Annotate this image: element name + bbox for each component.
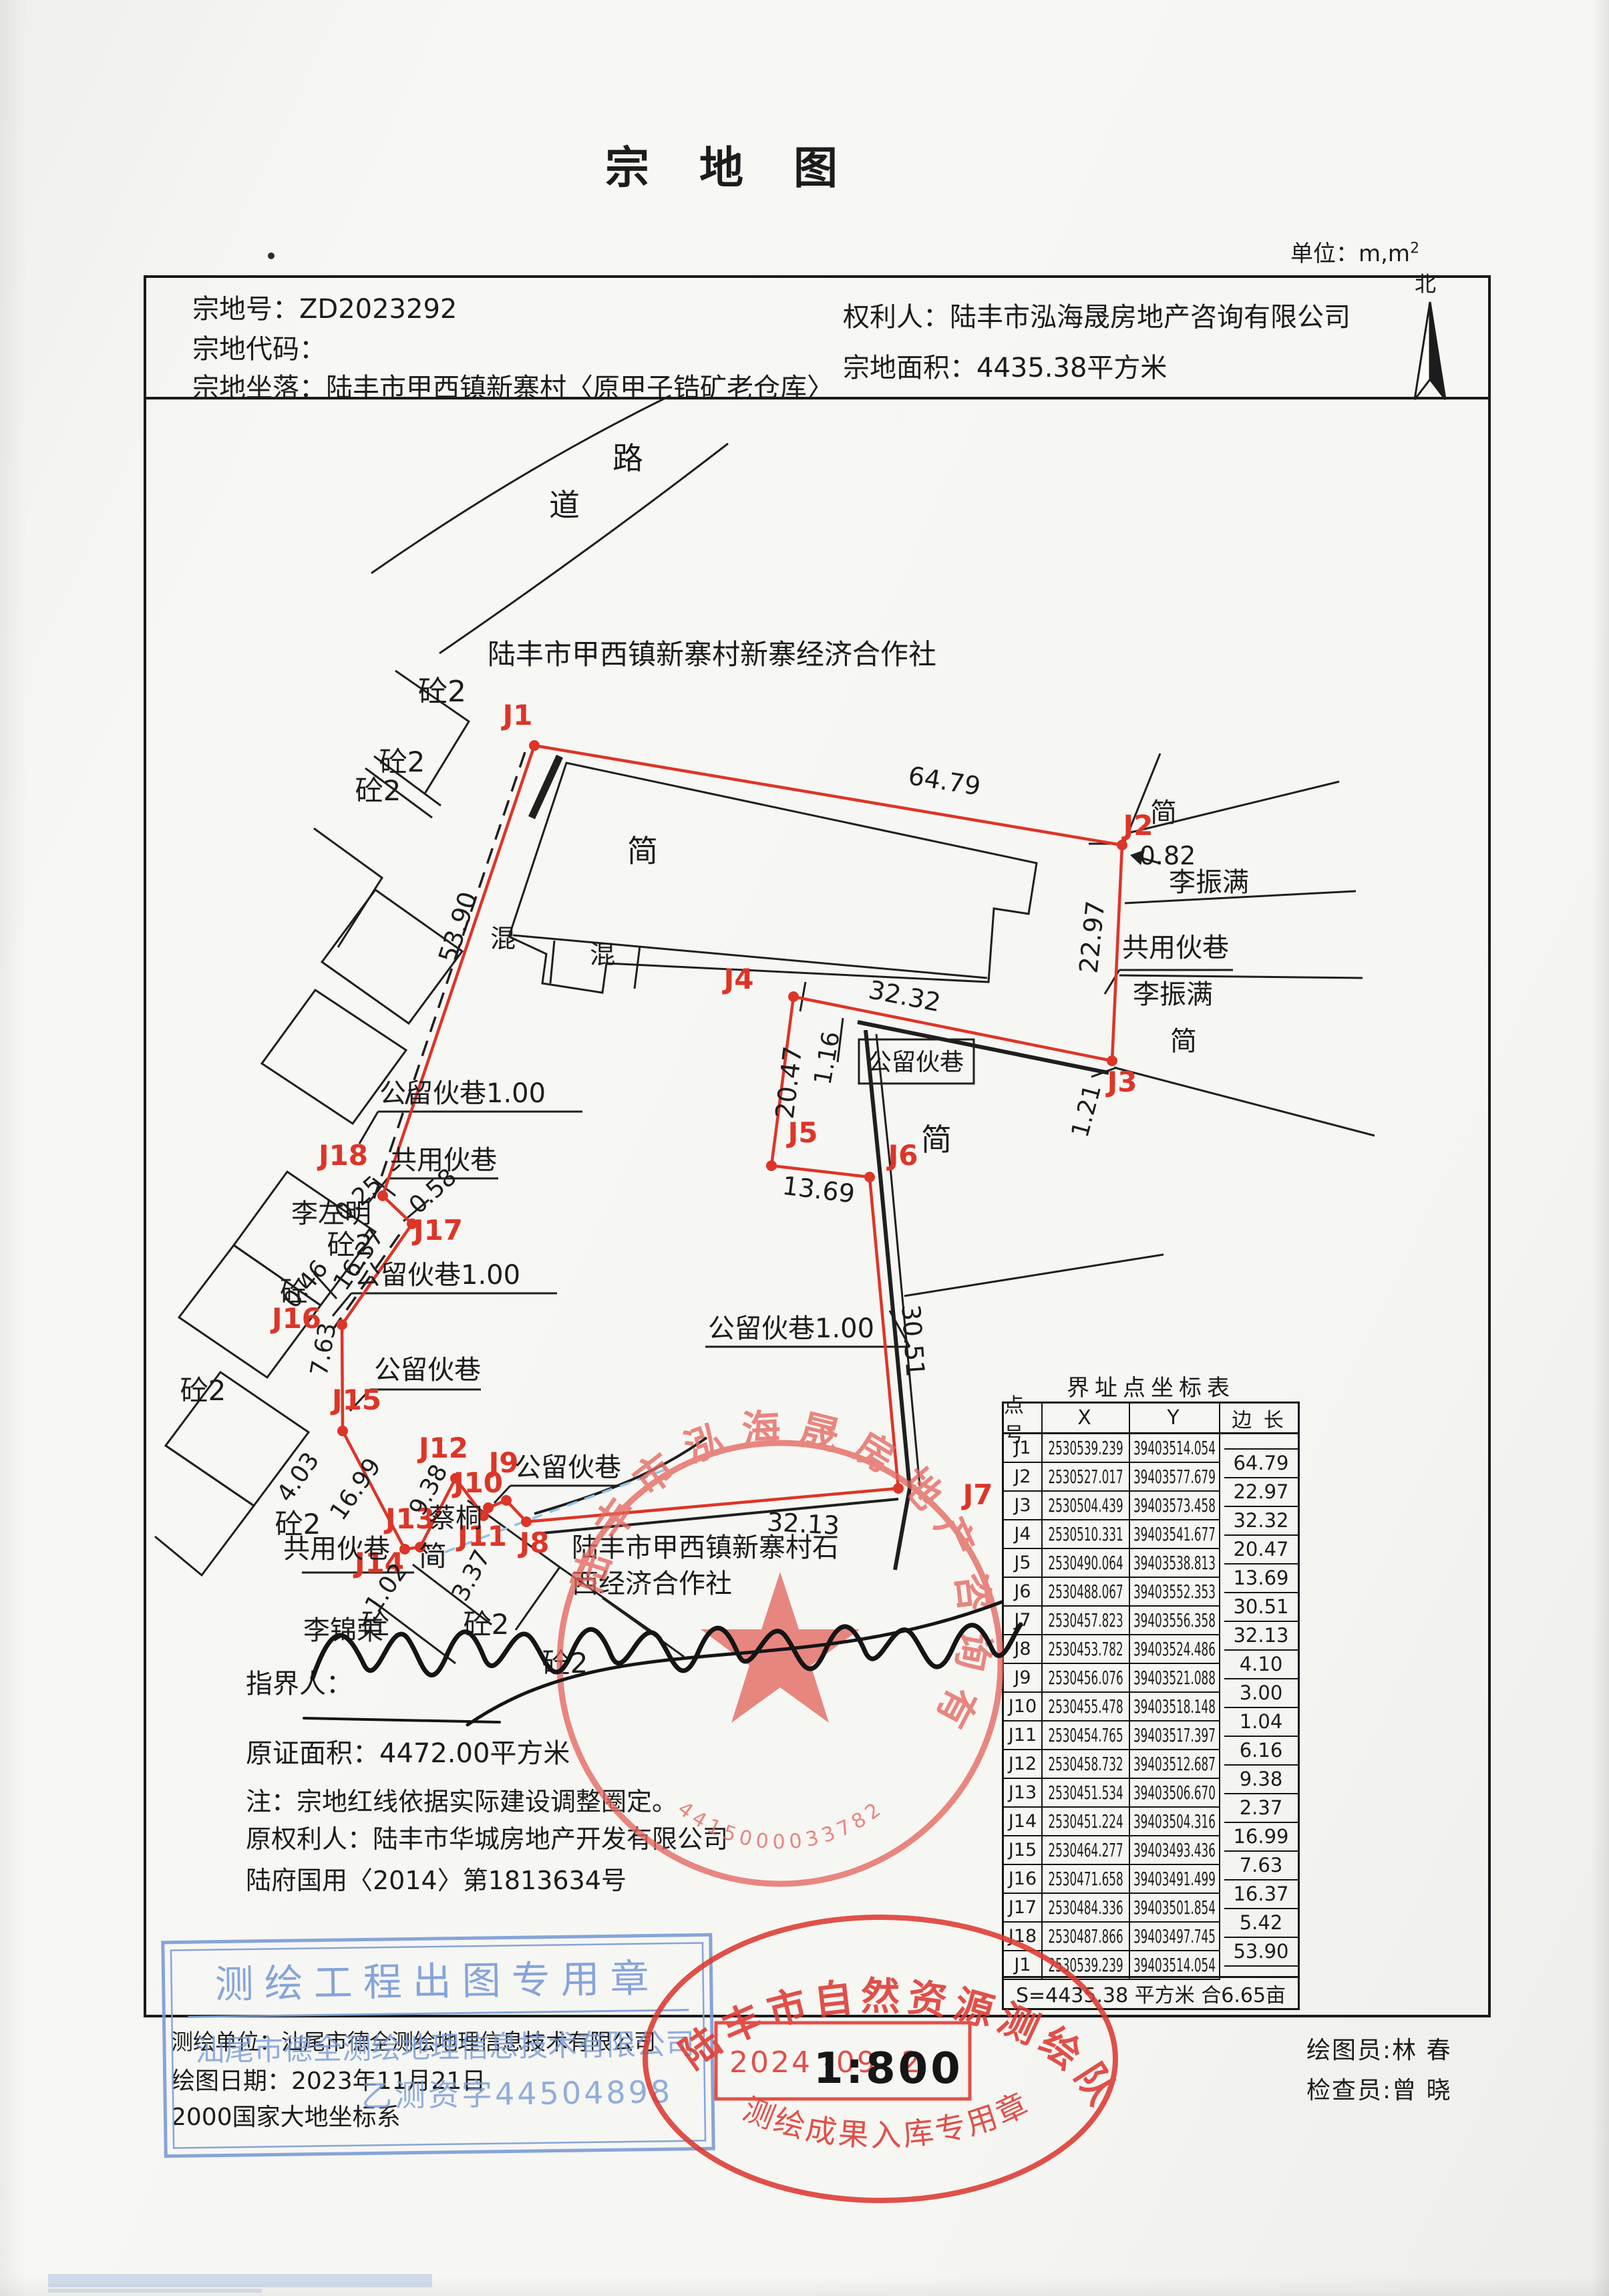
archive-stamp-date: 2024 -09- 2: [729, 2045, 922, 2080]
coord-cell: 39403506.670: [1130, 1779, 1220, 1808]
coord-cell: 39403493.436: [1130, 1836, 1220, 1865]
edge-divider: [1224, 1822, 1298, 1823]
edge-length-14: 16.99: [1224, 1824, 1298, 1849]
coord-cell: 39403517.397: [1130, 1721, 1220, 1750]
boundary-point-table: 界址点坐标表 点 号 X Y 边 长 J12530539.23939403514…: [1002, 1369, 1300, 2010]
coord-cell: J12: [1004, 1750, 1043, 1779]
table-grid: 点 号 X Y 边 长 J12530539.23939403514.054J22…: [1002, 1402, 1300, 2010]
field-parcel-no: 宗地号：ZD2023292: [192, 287, 457, 326]
coord-cell: 39403541.677: [1130, 1520, 1220, 1549]
parcel-code-label: 宗地代码：: [192, 334, 326, 365]
parcel-map-sheet: 宗 地 图 单位：m,m2 北 宗地号：ZD2023292 宗地代码： 宗地坐落…: [0, 0, 1609, 2296]
edge-divider: [1224, 1621, 1298, 1622]
coord-cell: J5: [1004, 1549, 1043, 1578]
coord-cell: J2: [1004, 1463, 1043, 1492]
table-title: 界址点坐标表: [1002, 1369, 1300, 1402]
coord-cell: J11: [1004, 1721, 1043, 1750]
scan-blue-streak: [48, 2274, 432, 2287]
edge-divider: [1224, 1937, 1298, 1938]
edge-length-2: 22.97: [1224, 1479, 1298, 1504]
coord-cell: 2530484.336: [1043, 1894, 1130, 1923]
edge-length-1: 64.79: [1224, 1450, 1298, 1476]
location-value: 陆丰市甲西镇新寨村〈原甲子锆矿老仓库〉: [326, 373, 834, 403]
parcel-no-value: ZD2023292: [299, 294, 457, 325]
edge-divider: [1224, 1592, 1298, 1593]
unit-label: 单位：m,m: [1290, 240, 1410, 267]
edge-divider: [1224, 1506, 1298, 1507]
coord-cell: 39403556.358: [1130, 1607, 1220, 1635]
coord-cell: J7: [1004, 1607, 1043, 1635]
edge-divider: [1224, 1879, 1298, 1880]
unit-note: 单位：m,m2: [1290, 235, 1419, 268]
coord-cell: J10: [1004, 1693, 1043, 1721]
coord-cell: J1: [1004, 1434, 1043, 1463]
page-title: 宗 地 图: [573, 132, 887, 196]
holder-value: 陆丰市泓海晟房地产咨询有限公司: [950, 302, 1351, 333]
coord-cell: J9: [1004, 1664, 1043, 1693]
archive-stamp-bottom-text: 测绘成果入库专用章: [738, 2085, 1035, 2154]
edge-length-4: 20.47: [1224, 1536, 1298, 1562]
coord-cell: 39403577.679: [1130, 1463, 1220, 1492]
checker-line: 检查员:曾 晓: [1306, 2071, 1452, 2106]
edge-length-10: 1.04: [1224, 1709, 1298, 1734]
scan-blue-streak: [48, 2289, 262, 2293]
coord-cell: 2530471.658: [1043, 1865, 1130, 1894]
edge-divider: [1224, 1736, 1298, 1737]
table-header-row: 点 号 X Y 边 长: [1004, 1404, 1298, 1434]
edge-length-12: 9.38: [1224, 1766, 1298, 1792]
surveyor-org-line: 测绘单位：汕尾市德全测绘地理信息技术有限公司: [171, 2024, 656, 2056]
edge-divider: [1224, 1850, 1298, 1852]
coord-cell: 2530488.067: [1043, 1578, 1130, 1607]
edge-divider: [1224, 1649, 1298, 1651]
area-label: 宗地面积：: [843, 353, 976, 383]
edge-length-9: 3.00: [1224, 1680, 1298, 1705]
coord-cell: J18: [1004, 1923, 1043, 1951]
edge-divider: [1224, 1448, 1298, 1450]
coord-cell: 39403504.316: [1130, 1808, 1220, 1836]
coord-cell: 2530453.782: [1043, 1635, 1130, 1664]
coord-cell: 2530487.866: [1043, 1923, 1130, 1951]
edge-length-16: 16.37: [1224, 1881, 1298, 1907]
coord-cell: 39403514.054: [1130, 1434, 1220, 1463]
table-summary: S=4435.38 平方米 合6.65亩: [1004, 1976, 1298, 2008]
edge-length-13: 2.37: [1224, 1795, 1298, 1820]
coord-cell: J14: [1004, 1808, 1043, 1836]
edge-length-6: 30.51: [1224, 1594, 1298, 1619]
unit-sup: 2: [1410, 240, 1419, 257]
coord-cell: 2530458.732: [1043, 1750, 1130, 1779]
draw-date-line: 绘图日期：2023年11月21日: [171, 2062, 486, 2096]
coord-cell: 39403501.854: [1130, 1894, 1220, 1923]
coord-cell: 39403538.813: [1130, 1549, 1220, 1578]
original-area-note: 原证面积：4472.00平方米: [246, 1732, 570, 1770]
map-scale: 1:800: [814, 2044, 963, 2094]
pointer-person-label: 指界人：: [246, 1662, 353, 1701]
edge-divider: [1224, 1477, 1298, 1478]
edge-length-8: 4.10: [1224, 1651, 1298, 1677]
field-location: 宗地坐落：陆丰市甲西镇新寨村〈原甲子锆矿老仓库〉: [192, 366, 834, 405]
edge-length-18: 53.90: [1224, 1939, 1298, 1964]
col-header-point: 点 号: [1004, 1404, 1043, 1432]
coord-cell: J15: [1004, 1836, 1043, 1865]
edge-length-column: 64.7922.9732.3220.4713.6930.5132.134.103…: [1224, 1434, 1298, 1976]
holder-label: 权利人：: [843, 302, 950, 333]
coord-cell: J17: [1004, 1894, 1043, 1923]
coord-cell: J3: [1004, 1492, 1043, 1520]
coord-cell: 2530457.823: [1043, 1607, 1130, 1635]
coord-cell: 39403552.353: [1130, 1578, 1220, 1607]
svg-text:测绘成果入库专用章: 测绘成果入库专用章: [738, 2085, 1035, 2154]
field-parcel-code: 宗地代码：: [192, 327, 326, 366]
coord-cell: 2530451.224: [1043, 1808, 1130, 1836]
edge-divider: [1224, 1678, 1298, 1679]
coord-cell: J8: [1004, 1635, 1043, 1664]
scan-speck: [268, 253, 275, 259]
coord-cell: 2530527.017: [1043, 1463, 1130, 1492]
coord-cell: 39403573.458: [1130, 1492, 1220, 1520]
coord-cell: 39403497.745: [1130, 1923, 1220, 1951]
col-header-length: 边 长: [1220, 1404, 1298, 1432]
edge-length-15: 7.63: [1224, 1852, 1298, 1878]
edge-length-3: 32.32: [1224, 1508, 1298, 1533]
coord-cell: 2530464.277: [1043, 1836, 1130, 1865]
col-header-y: Y: [1130, 1404, 1220, 1432]
edge-length-11: 6.16: [1224, 1738, 1298, 1763]
coord-cell: 2530451.534: [1043, 1779, 1130, 1808]
drafter-line: 绘图员:林 春: [1306, 2031, 1452, 2066]
coord-cell: 2530490.064: [1043, 1549, 1130, 1578]
coord-cell: 2530454.765: [1043, 1721, 1130, 1750]
original-holder-note: 原权利人：陆丰市华城房地产开发有限公司: [246, 1818, 728, 1855]
field-holder: 权利人：陆丰市泓海晟房地产咨询有限公司: [843, 295, 1351, 334]
edge-divider: [1224, 1563, 1298, 1565]
edge-divider: [1224, 1908, 1298, 1909]
coord-cell: J13: [1004, 1779, 1043, 1808]
edge-divider: [1224, 1965, 1298, 1967]
edge-length-5: 13.69: [1224, 1565, 1298, 1591]
redline-note: 注：宗地红线依据实际建设调整圈定。: [246, 1781, 677, 1818]
coord-cell: 39403512.687: [1130, 1750, 1220, 1779]
parcel-no-label: 宗地号：: [192, 294, 299, 325]
coord-cell: 2530455.478: [1043, 1693, 1130, 1721]
coord-cell: 2530510.331: [1043, 1520, 1130, 1549]
coord-cell: 39403521.088: [1130, 1664, 1220, 1693]
edge-length-7: 32.13: [1224, 1623, 1298, 1648]
coord-cell: J6: [1004, 1578, 1043, 1607]
coord-cell: 39403491.499: [1130, 1865, 1220, 1894]
edge-divider: [1224, 1707, 1298, 1708]
coord-cell: J4: [1004, 1520, 1043, 1549]
coord-cell: 2530456.076: [1043, 1664, 1130, 1693]
datum-line: 2000国家大地坐标系: [171, 2098, 401, 2132]
coord-cell: 39403524.486: [1130, 1635, 1220, 1664]
coord-cell: 39403518.148: [1130, 1693, 1220, 1721]
edge-divider: [1224, 1764, 1298, 1766]
col-header-x: X: [1043, 1404, 1130, 1432]
coord-cell: 2530504.439: [1043, 1492, 1130, 1520]
area-value: 4435.38平方米: [976, 353, 1167, 383]
edge-length-17: 5.42: [1224, 1910, 1298, 1935]
field-area: 宗地面积：4435.38平方米: [843, 346, 1167, 385]
certificate-no-note: 陆府国用〈2014〉第1813634号: [246, 1860, 627, 1897]
coord-cell: 2530539.239: [1043, 1434, 1130, 1463]
edge-divider: [1224, 1793, 1298, 1794]
edge-divider: [1224, 1534, 1298, 1536]
location-label: 宗地坐落：: [192, 373, 326, 403]
coord-cell: J16: [1004, 1865, 1043, 1894]
